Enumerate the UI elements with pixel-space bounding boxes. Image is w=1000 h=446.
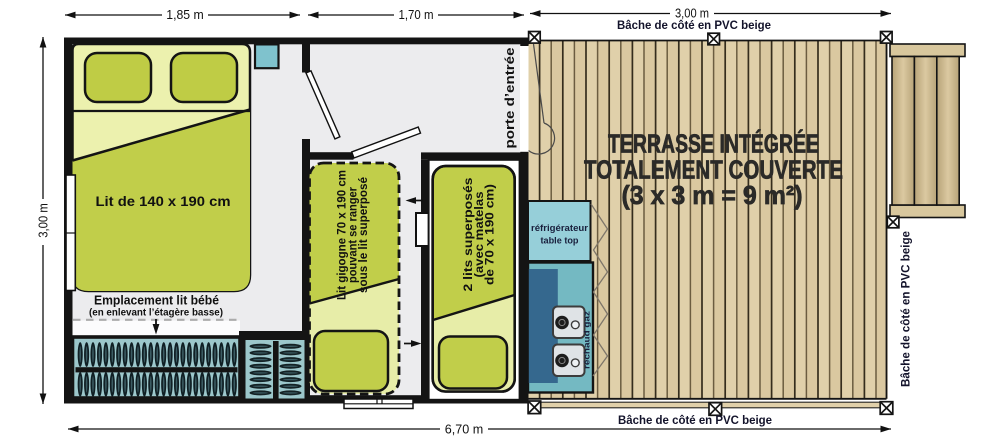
svg-text:1,85 m: 1,85 m — [166, 8, 204, 22]
svg-text:Lit gigogne 70 x 190 cmpouvant: Lit gigogne 70 x 190 cmpouvant se ranger… — [336, 170, 371, 300]
svg-text:2 lits superposés(avec matelas: 2 lits superposés(avec matelasde 70 x 19… — [462, 178, 497, 292]
svg-text:3,00 m: 3,00 m — [37, 203, 51, 238]
svg-text:(3 x 3 m = 9 m²): (3 x 3 m = 9 m²) — [622, 180, 803, 210]
svg-text:Bâche de côté en PVC beige: Bâche de côté en PVC beige — [617, 20, 771, 32]
svg-text:1,70 m: 1,70 m — [399, 8, 434, 22]
svg-text:Lit de 140 x 190 cm: Lit de 140 x 190 cm — [96, 194, 231, 209]
svg-text:Bâche de côté en PVC beige: Bâche de côté en PVC beige — [901, 231, 913, 387]
svg-text:réfrigérateur: réfrigérateur — [531, 223, 589, 233]
svg-text:Bâche de côté en PVC beige: Bâche de côté en PVC beige — [618, 415, 772, 427]
svg-text:(en enlevant l’étagère basse): (en enlevant l’étagère basse) — [89, 307, 223, 319]
svg-text:table top: table top — [541, 236, 580, 246]
svg-text:6,70 m: 6,70 m — [445, 423, 484, 437]
svg-text:porte d’entrée: porte d’entrée — [502, 48, 517, 149]
svg-text:3,00 m: 3,00 m — [675, 7, 709, 21]
svg-text:Emplacement lit bébé: Emplacement lit bébé — [94, 294, 219, 308]
svg-text:réchaud gaz: réchaud gaz — [583, 311, 592, 369]
